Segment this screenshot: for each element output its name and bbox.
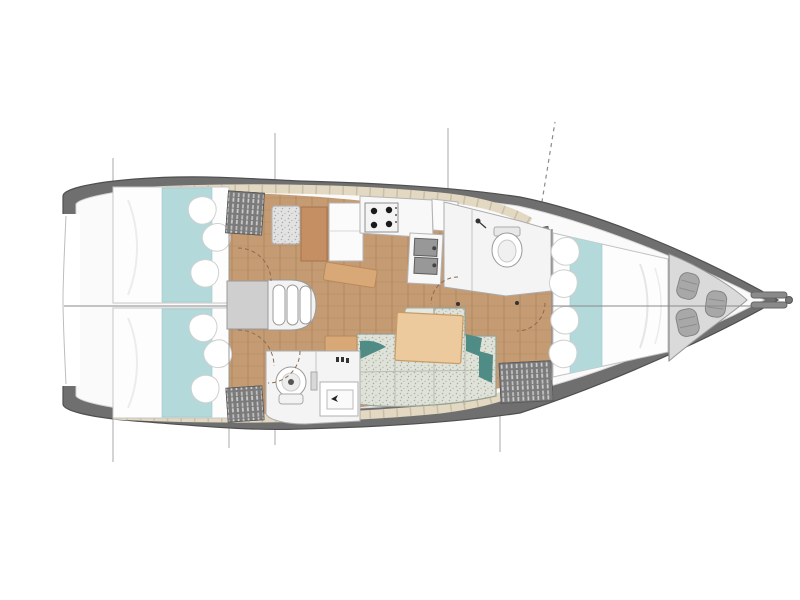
step-2 (287, 285, 298, 325)
aft-cabin-port (113, 187, 233, 303)
anchor-roller-bar (751, 292, 787, 298)
shower-control (341, 357, 344, 362)
toilet-base (279, 394, 303, 404)
nav-seat-texture (272, 206, 300, 244)
stove-knob (395, 214, 397, 216)
wardrobe-hatch (499, 361, 553, 404)
nav-berth (329, 203, 363, 261)
burner (386, 207, 392, 213)
chart-table (301, 207, 327, 261)
door-pivot (515, 301, 519, 305)
transom-opening (54, 214, 80, 386)
step-1 (273, 285, 285, 325)
burner (371, 222, 377, 228)
stove-knob (395, 221, 397, 223)
shower-control (346, 358, 349, 363)
floor-plan-canvas (0, 0, 800, 600)
wardrobe-hatch (226, 191, 265, 235)
stove (365, 203, 398, 232)
bow-roller-pin (786, 297, 793, 304)
table-top (395, 312, 463, 363)
step-3 (300, 286, 311, 324)
stove-knob (395, 207, 397, 209)
sink-basin (327, 390, 353, 409)
engine-box (227, 281, 271, 329)
galley-sink-unit (407, 233, 443, 285)
toilet-seat (498, 240, 516, 262)
aft-cabin-starboard (113, 308, 235, 418)
burner (371, 208, 377, 214)
wardrobe-aft-bottom (226, 386, 264, 422)
fender-body (704, 290, 727, 319)
wardrobe-forward-bottom (499, 361, 553, 404)
fender-2 (704, 290, 727, 319)
floor-plan-svg (0, 0, 800, 600)
companionway (227, 280, 316, 330)
salon-table (395, 312, 463, 363)
wardrobe-hatch (226, 386, 264, 422)
wardrobe-aft-top (226, 191, 265, 235)
door-pivot (456, 302, 460, 306)
aft-head (266, 351, 360, 424)
anchor-roller-bar (751, 302, 787, 308)
toilet-drain (288, 379, 294, 385)
shower-control (336, 357, 339, 362)
pump-handle (311, 372, 317, 390)
burner (386, 221, 392, 227)
